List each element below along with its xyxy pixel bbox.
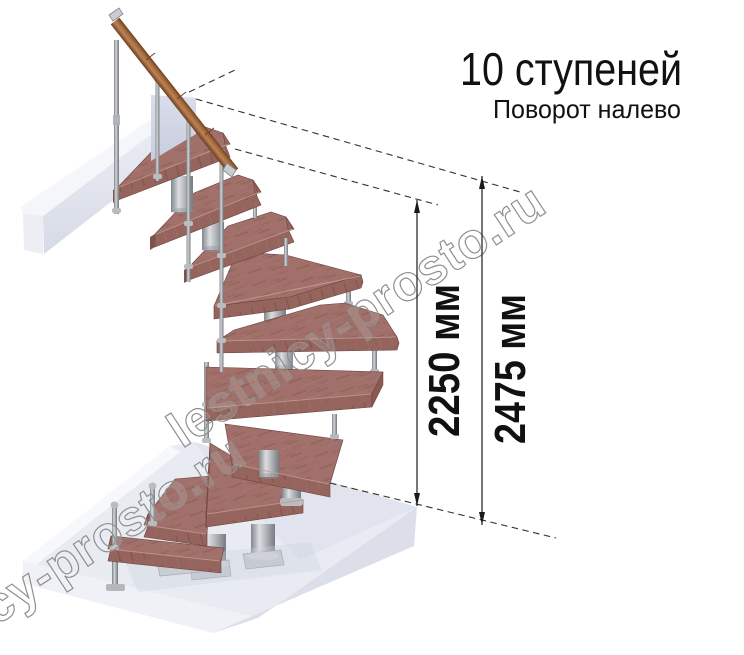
svg-text:10 ступеней: 10 ступеней xyxy=(460,43,682,95)
svg-text:2250 мм: 2250 мм xyxy=(420,284,469,437)
svg-text:Поворот налево: Поворот налево xyxy=(493,94,681,124)
svg-text:2475 мм: 2475 мм xyxy=(486,294,535,444)
